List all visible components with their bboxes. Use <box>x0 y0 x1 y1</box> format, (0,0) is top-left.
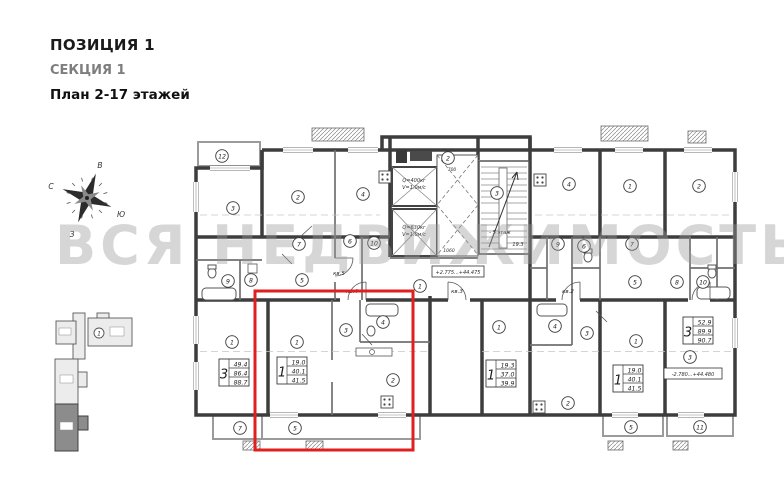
elevator-2-capacity: Q=630кг <box>402 225 426 231</box>
svg-text:1: 1 <box>230 339 234 346</box>
room-number-circle: 5 <box>625 421 638 434</box>
apartment-spec-table: 119.337.039.9 <box>486 360 516 387</box>
compass-rose: С В Ю З <box>48 161 125 239</box>
svg-text:19.0: 19.0 <box>292 359 306 366</box>
toilet-tank <box>708 265 716 269</box>
stove-icon <box>379 171 391 183</box>
room-number-circle: 1 <box>291 336 304 349</box>
room-number-circle: 7 <box>293 238 306 251</box>
balcony-bottom-2 <box>262 415 420 439</box>
section-title: СЕКЦИЯ 1 <box>50 63 190 78</box>
room-number-circle: 4 <box>377 316 390 329</box>
svg-text:5: 5 <box>300 277 304 284</box>
room-number-circle: 3 <box>227 202 240 215</box>
position-title: ПОЗИЦИЯ 1 <box>50 36 190 54</box>
elevation-core-label: +2.775...+44.475 <box>436 270 481 276</box>
elevator-machine-box <box>396 149 407 163</box>
elevator-core: Q=400кг V=1.0м/с Q=630кг V=1.0м/с 700 10… <box>392 149 478 256</box>
stove-icon <box>534 174 546 186</box>
stove-icon <box>381 396 393 408</box>
svg-text:6: 6 <box>348 238 352 245</box>
svg-text:7: 7 <box>238 425 242 432</box>
room-number-circle: 2 <box>387 374 400 387</box>
bathtub-icon <box>202 288 236 300</box>
svg-text:40.1: 40.1 <box>292 368 306 375</box>
svg-text:19.3: 19.3 <box>501 362 515 369</box>
room-number-circle: 2 <box>442 152 455 165</box>
svg-text:40.1: 40.1 <box>628 376 642 383</box>
svg-text:11: 11 <box>696 424 704 431</box>
svg-text:3: 3 <box>220 368 228 383</box>
room-number-circle: 1 <box>414 280 427 293</box>
svg-text:86.4: 86.4 <box>234 370 248 377</box>
svg-text:8: 8 <box>675 279 679 286</box>
dimension-700: 700 <box>448 167 457 173</box>
svg-text:41.5: 41.5 <box>628 385 642 392</box>
room-number-circle: 8 <box>245 274 258 287</box>
compass-east-label: В <box>97 161 102 170</box>
compass-north-label: С <box>48 182 54 191</box>
bathtub-icon <box>537 304 567 316</box>
svg-text:4: 4 <box>553 323 557 330</box>
svg-text:10: 10 <box>699 279 707 286</box>
svg-text:6: 6 <box>582 243 586 250</box>
apartment-spec-table: 352.989.990.7 <box>683 317 713 344</box>
room-number-circle: 10 <box>697 276 710 289</box>
svg-text:5: 5 <box>293 425 297 432</box>
svg-text:3: 3 <box>495 190 499 197</box>
compass-west-label: З <box>70 230 75 239</box>
svg-text:88.7: 88.7 <box>234 379 248 386</box>
svg-text:52.9: 52.9 <box>698 319 712 326</box>
room-number-circle: 6 <box>344 235 357 248</box>
svg-text:39.9: 39.9 <box>501 380 515 387</box>
room-number-circle: 3 <box>684 351 697 364</box>
compass-south-label: Ю <box>117 210 125 219</box>
vent-shaft <box>437 155 478 256</box>
elevator-2-speed: V=1.0м/с <box>402 232 426 238</box>
room-number-circle: 11 <box>694 421 707 434</box>
room-number-circle: 5 <box>289 422 302 435</box>
svg-text:9: 9 <box>226 278 230 285</box>
apartment-number-label: кв.5 <box>333 271 345 277</box>
svg-text:37.0: 37.0 <box>501 371 515 378</box>
room-number-circle: 1 <box>624 180 637 193</box>
room-number-circle: 9 <box>552 238 565 251</box>
room-number-circle: 2 <box>693 180 706 193</box>
room-number-circle: 1 <box>630 335 643 348</box>
svg-text:2: 2 <box>697 183 701 190</box>
svg-text:1: 1 <box>628 183 632 190</box>
svg-text:2: 2 <box>446 155 450 162</box>
room-number-circle: 10 <box>368 237 381 250</box>
room-number-circle: 12 <box>216 150 229 163</box>
room-number-circle: 5 <box>629 276 642 289</box>
svg-text:4: 4 <box>381 319 385 326</box>
svg-text:3: 3 <box>688 354 692 361</box>
room-number-circle: 2 <box>292 191 305 204</box>
svg-text:4: 4 <box>361 191 365 198</box>
elevator-1-speed: V=1.0м/с <box>402 185 426 191</box>
svg-text:19.0: 19.0 <box>628 367 642 374</box>
elevation-right-label: -2.780...+44.480 <box>672 372 715 378</box>
toilet-tank <box>208 265 216 269</box>
room-number-circle: 3 <box>491 187 504 200</box>
apartment-spec-table: 349.486.488.7 <box>219 359 249 386</box>
balcony-top-left <box>198 142 260 166</box>
svg-text:3: 3 <box>344 327 348 334</box>
room-number-circle: 9 <box>222 275 235 288</box>
svg-text:3: 3 <box>684 326 692 341</box>
svg-text:49.4: 49.4 <box>234 361 248 368</box>
svg-text:1: 1 <box>295 339 299 346</box>
room-number-circle: 6 <box>578 240 591 253</box>
svg-text:2: 2 <box>391 377 395 384</box>
plan-header: ПОЗИЦИЯ 1 СЕКЦИЯ 1 План 2-17 этажей <box>50 36 190 103</box>
elevator-door-box <box>410 151 432 161</box>
svg-text:1: 1 <box>418 283 422 290</box>
bathtub-icon <box>366 304 398 316</box>
room-number-circle: 4 <box>357 188 370 201</box>
room-number-circle: 7 <box>626 238 639 251</box>
room-number-circle: 5 <box>296 274 309 287</box>
svg-text:89.9: 89.9 <box>698 328 712 335</box>
room-number-circle: 1 <box>226 336 239 349</box>
svg-text:41.5: 41.5 <box>292 377 306 384</box>
apartment-spec-tables: 349.486.488.7119.040.141.5119.337.039.91… <box>219 317 713 392</box>
dimension-1060: 1060 <box>443 248 455 254</box>
svg-text:90.7: 90.7 <box>698 337 712 344</box>
room-number-circle: 7 <box>234 422 247 435</box>
bathtub-icon <box>697 287 730 299</box>
building-minimap: 1 <box>55 313 132 451</box>
apartment-number-label: кв.3 <box>451 289 463 295</box>
svg-text:2: 2 <box>566 400 570 407</box>
svg-text:5: 5 <box>633 279 637 286</box>
room-number-circle: 3 <box>340 324 353 337</box>
svg-text:3: 3 <box>585 330 589 337</box>
staircase: - 5 этаж 19.3 <box>479 161 529 254</box>
svg-text:4: 4 <box>567 181 571 188</box>
svg-text:10: 10 <box>370 240 378 247</box>
room-number-circle: 4 <box>549 320 562 333</box>
toilet-icon <box>367 326 375 336</box>
svg-text:2: 2 <box>296 194 300 201</box>
floors-subtitle: План 2-17 этажей <box>50 87 190 103</box>
svg-text:7: 7 <box>630 241 634 248</box>
sink-icon <box>370 350 375 355</box>
washbasin-icon <box>248 264 257 273</box>
floorplan-page: ПОЗИЦИЯ 1 СЕКЦИЯ 1 План 2-17 этажей <box>0 0 784 500</box>
room-number-circle: 3 <box>581 327 594 340</box>
svg-text:7: 7 <box>297 241 301 248</box>
room-number-circle: 2 <box>562 397 575 410</box>
stove-icon <box>533 401 545 413</box>
room-number-circle: 1 <box>493 321 506 334</box>
svg-text:1: 1 <box>497 324 501 331</box>
stairs-floor-note: - 5 этаж <box>489 230 511 236</box>
svg-text:1: 1 <box>614 374 622 389</box>
svg-text:8: 8 <box>249 277 253 284</box>
svg-text:3: 3 <box>231 205 235 212</box>
room-number-circle: 4 <box>563 178 576 191</box>
room-number-circle: 8 <box>671 276 684 289</box>
svg-text:5: 5 <box>629 424 633 431</box>
svg-text:1: 1 <box>278 366 286 381</box>
stairs-area: 19.3 <box>512 242 523 248</box>
apartment-spec-table: 119.040.141.5 <box>277 357 307 384</box>
svg-text:1: 1 <box>487 369 495 384</box>
svg-text:9: 9 <box>556 241 560 248</box>
apartment-spec-table: 119.040.141.5 <box>613 365 643 392</box>
apartment-number-label: кв.2 <box>562 289 574 295</box>
elevator-1-capacity: Q=400кг <box>402 178 426 184</box>
svg-text:12: 12 <box>218 153 226 160</box>
minimap-position-number: 1 <box>97 331 101 338</box>
svg-text:1: 1 <box>634 338 638 345</box>
